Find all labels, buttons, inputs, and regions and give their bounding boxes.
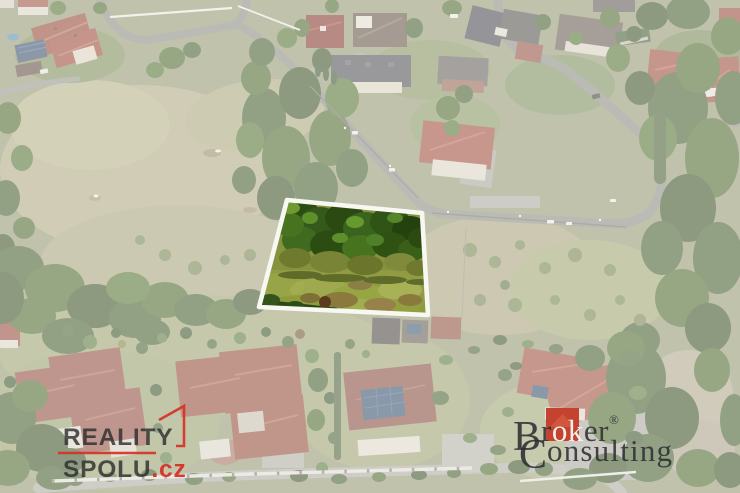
consulting-rest: onsulting [547,433,673,468]
aerial-photo-listing: REALITY SPOLU.cz Broker® Consulting [0,0,740,493]
reality-spolu-line2: SPOLU [63,456,151,483]
reality-spolu-line1: REALITY [63,424,173,451]
broker-registered-mark: ® [609,412,619,427]
consulting-initial-c: C [519,432,547,478]
reality-spolu-tld: .cz [151,456,186,483]
svg-text:SPOLU.cz: SPOLU.cz [63,456,187,483]
aerial-photo: REALITY SPOLU.cz Broker® Consulting [0,0,740,493]
